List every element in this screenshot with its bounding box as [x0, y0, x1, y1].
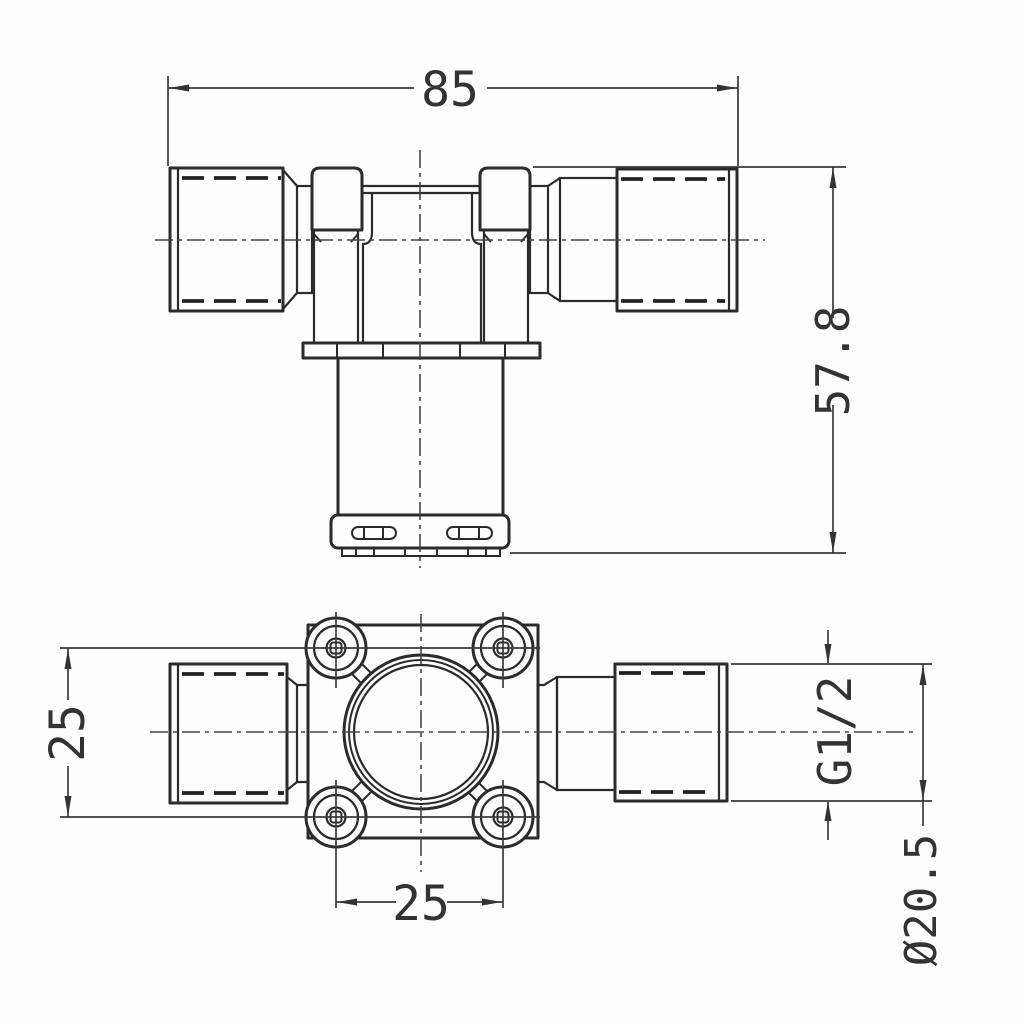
arrowhead-up — [920, 665, 927, 685]
dimension-thread-size: G1/2 — [731, 630, 932, 840]
dim-label-thread-size: G1/2 — [808, 676, 862, 787]
pipe-tube — [557, 677, 615, 790]
dimension-hole-spacing-horizontal: 25 — [336, 876, 503, 932]
arrowhead-right — [482, 899, 502, 906]
dimension-overall-length: 85 — [168, 62, 738, 166]
arrowhead-down — [830, 532, 837, 552]
top-view — [150, 612, 918, 908]
arrowhead-right — [717, 85, 737, 92]
pipe-tube-edges — [297, 685, 308, 782]
union-nut-left — [312, 168, 362, 343]
arrowhead-down — [65, 796, 72, 816]
arrowhead-up — [830, 168, 837, 188]
union-nut-right — [480, 168, 530, 343]
front-view — [155, 150, 765, 568]
left-threaded-port-top — [170, 664, 308, 803]
mounting-flange — [303, 343, 540, 358]
arrowhead-down — [825, 644, 832, 664]
technical-drawing-canvas: 85 57.8 25 25 G1/2 Ø20.5 — [0, 0, 1024, 1024]
arrowhead-up — [825, 801, 832, 821]
dim-label-thread-outer-diameter: Ø20.5 — [896, 834, 947, 966]
nut-column — [484, 230, 528, 343]
dim-label-overall-height: 57.8 — [806, 306, 860, 417]
arrowhead-left — [337, 899, 357, 906]
dim-label-hole-spacing-vertical: 25 — [40, 704, 96, 762]
dim-label-overall-length: 85 — [421, 62, 479, 118]
dim-label-hole-spacing-horizontal: 25 — [392, 876, 450, 932]
body-bore-walls — [363, 193, 481, 343]
arrowhead-up — [65, 649, 72, 669]
nut-column — [314, 230, 358, 343]
dimension-thread-outer-diameter: Ø20.5 — [896, 664, 947, 966]
right-pipe-section-top — [538, 677, 615, 790]
arrowhead-left — [169, 85, 189, 92]
valve-body-front — [362, 186, 481, 343]
arrowhead-down — [920, 780, 927, 800]
solenoid-valve-drawing: 85 57.8 25 25 G1/2 Ø20.5 — [0, 0, 1024, 1024]
pipe-cone — [538, 677, 557, 790]
body-top-edges — [362, 186, 480, 193]
